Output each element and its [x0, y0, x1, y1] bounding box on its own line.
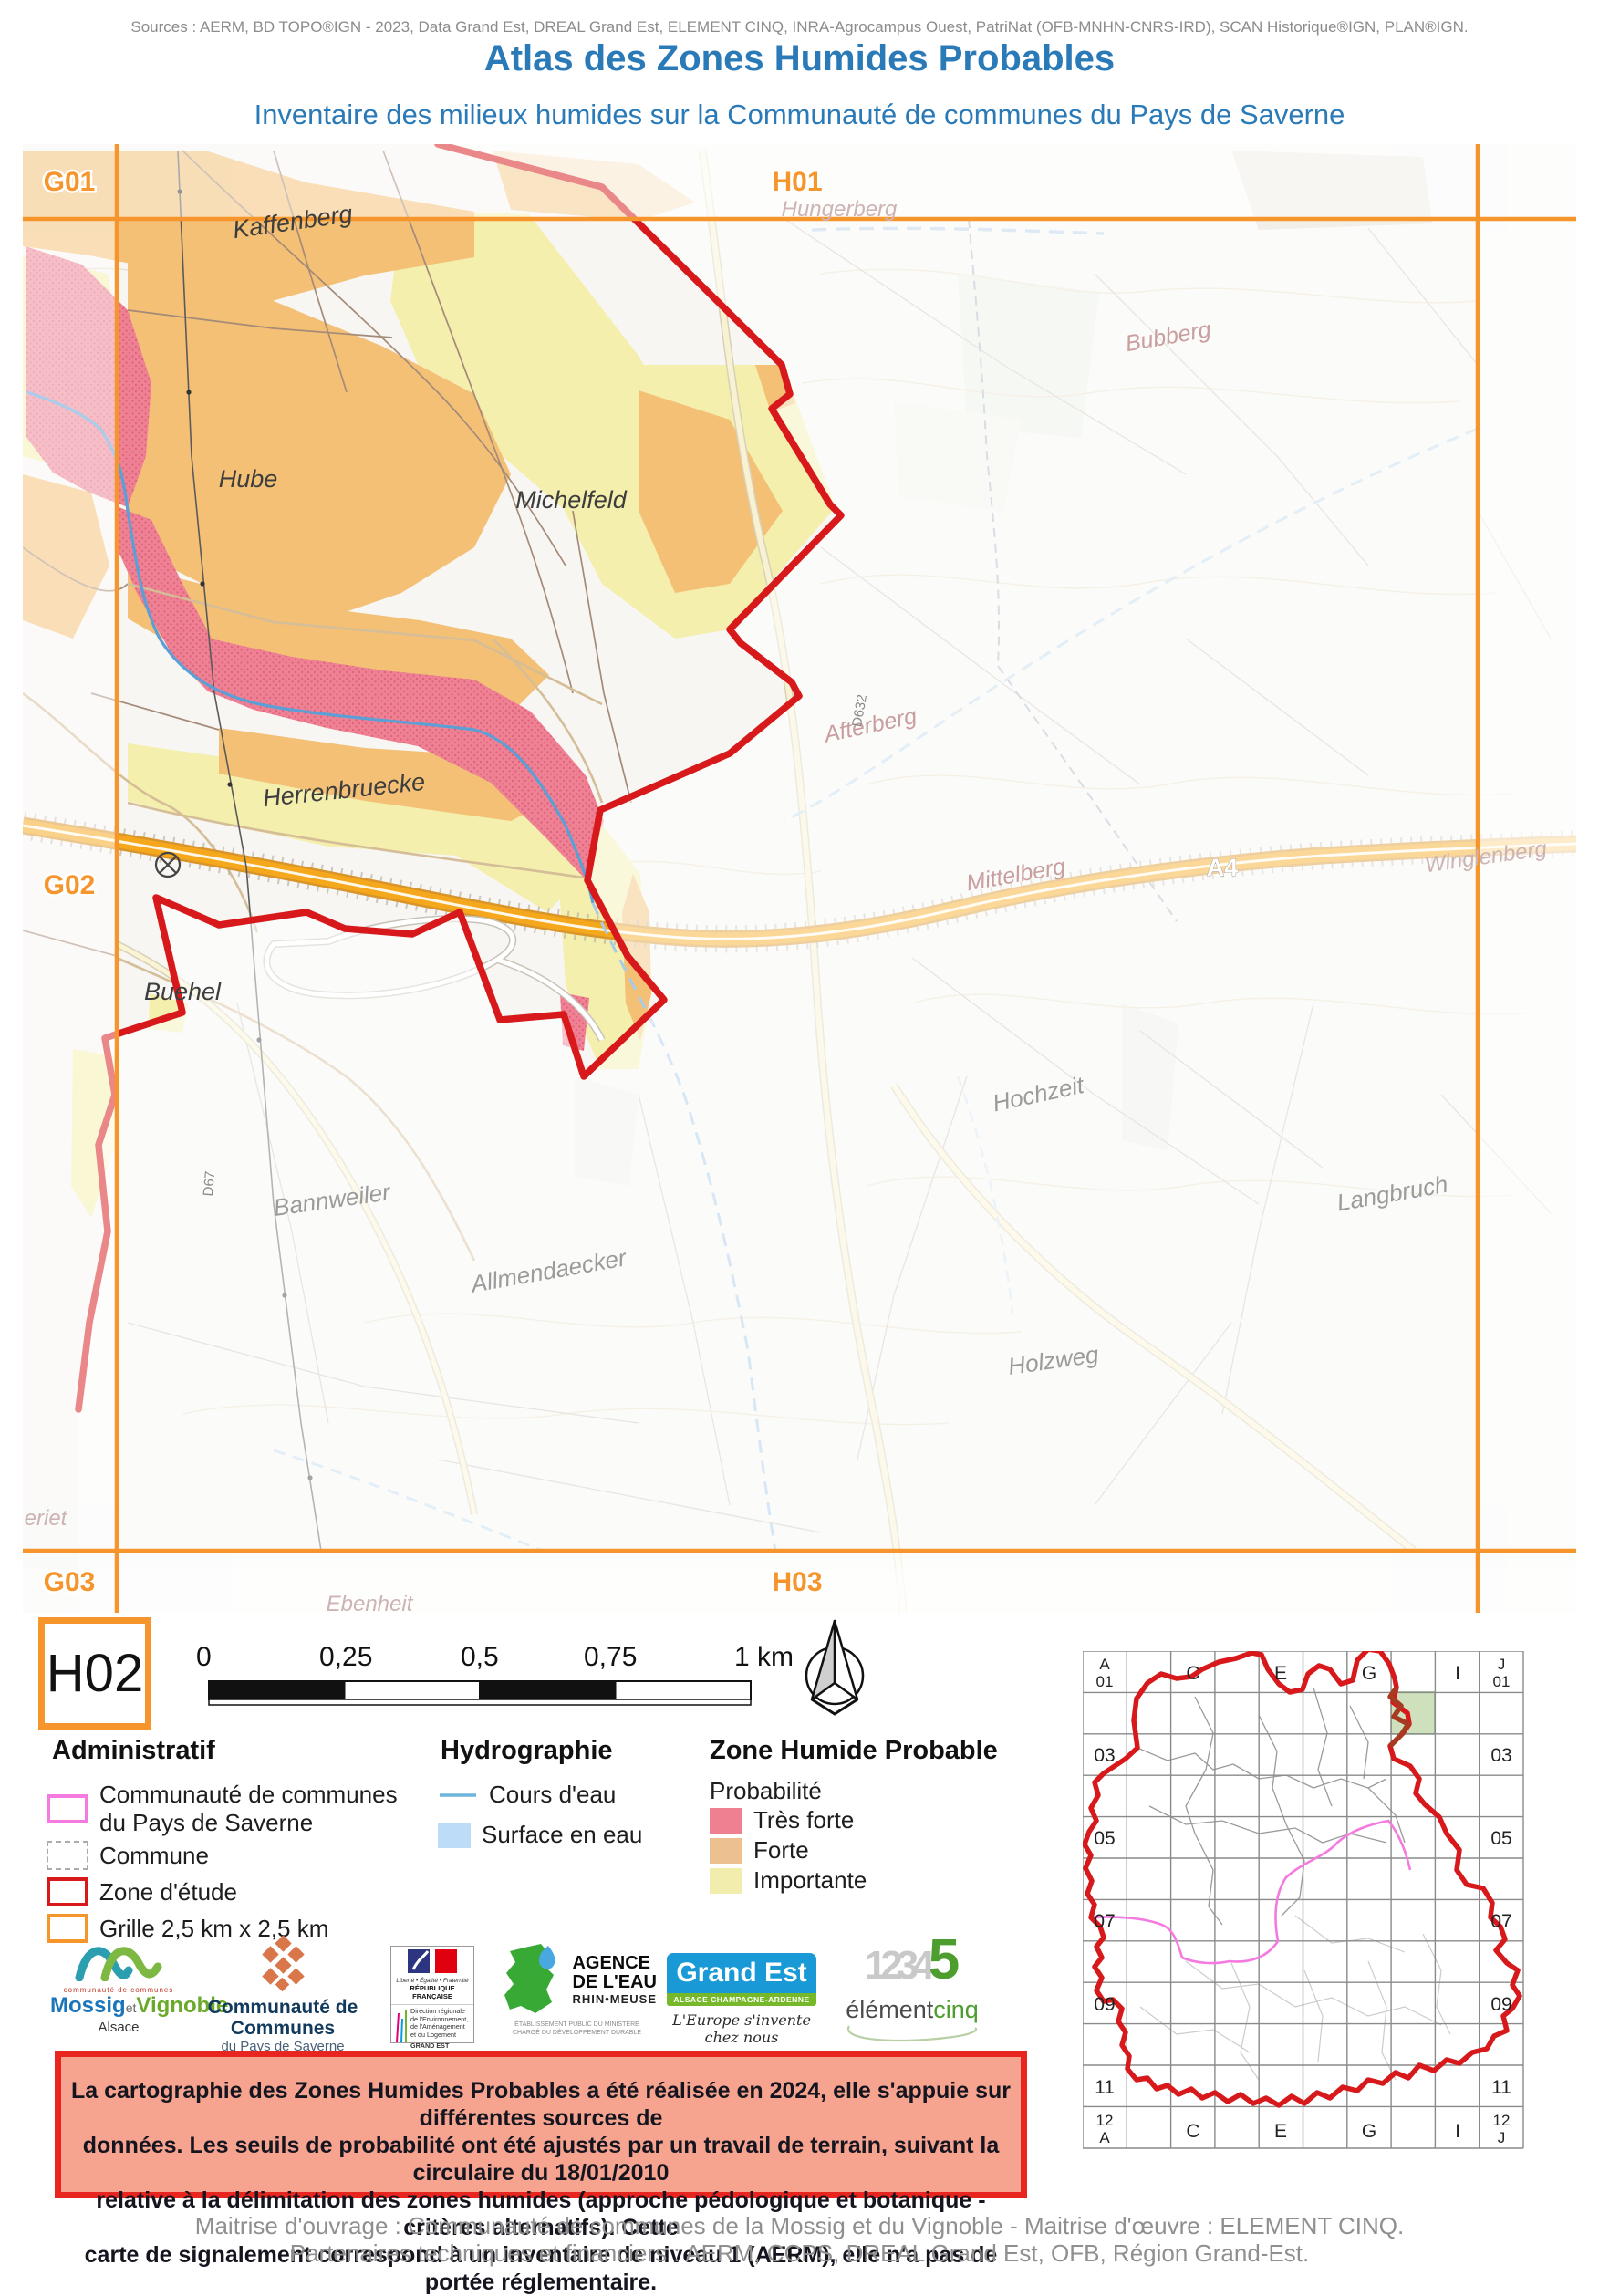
legend-administratif-title: Administratif — [52, 1736, 215, 1766]
dreal-motto: Liberté • Égalité • Fraternité — [391, 1978, 473, 1984]
ov-row-09-l: 09 — [1094, 1994, 1115, 2015]
dreal-sticks-mark — [394, 2008, 410, 2044]
grid-ref-box: H02 — [38, 1617, 151, 1730]
cc-label-line2: du Pays de Saverne — [99, 1809, 398, 1837]
agence-l2: DE L'EAU — [572, 1973, 657, 1992]
forte-swatch — [710, 1838, 742, 1864]
legend-item-zone: Zone d'étude — [47, 1877, 237, 1906]
warning-line1: La cartographie des Zones Humides Probab… — [61, 2077, 1021, 2132]
cc-label-line1: Communauté de communes — [99, 1781, 398, 1809]
cours-eau-label: Cours d'eau — [489, 1781, 616, 1809]
grid-ref-label: H02 — [47, 1643, 143, 1704]
zone-etude-label: Zone d'étude — [99, 1878, 237, 1906]
ov-corner-bl-1: 12 — [1096, 2112, 1114, 2129]
scale-tick-0: 0 — [196, 1642, 212, 1673]
ov-corner-bl-2: A — [1099, 2129, 1110, 2146]
footer-line2: Partenaires techniques et financiers : A… — [0, 2239, 1599, 2268]
ov-row-07-l: 07 — [1094, 1911, 1115, 1932]
ov-row-05-r: 05 — [1490, 1828, 1511, 1849]
ov-corner-tr-2: 01 — [1493, 1673, 1511, 1690]
ov-corner-br-2: J — [1498, 2129, 1506, 2146]
page-title: Atlas des Zones Humides Probables — [0, 38, 1599, 79]
cc-symbol — [47, 1794, 88, 1823]
grid-label-g02: G02 — [44, 870, 96, 900]
legend-item-importante: Importante — [710, 1866, 867, 1895]
element5-swoosh — [844, 2024, 981, 2044]
north-arrow — [792, 1619, 878, 1718]
footer-line1: Maitrise d'ouvrage : Communauté de commu… — [0, 2212, 1599, 2240]
ov-row-07-r: 07 — [1490, 1911, 1511, 1932]
ov-corner-tl-1: A — [1099, 1656, 1110, 1673]
logo-dreal: Liberté • Égalité • Fraternité RÉPUBLIQU… — [390, 1946, 474, 2043]
surface-eau-symbol — [438, 1823, 471, 1848]
label-michelfeld: Michelfeld — [515, 486, 628, 514]
legend-hydrographie-title: Hydrographie — [441, 1736, 613, 1766]
ov-top-i: I — [1455, 1663, 1460, 1684]
logo-cc-saverne: Communauté de Communes du Pays de Savern… — [192, 1936, 374, 2054]
ov-bottom-g: G — [1362, 2121, 1376, 2142]
element5-word1: élément — [846, 1996, 933, 2023]
element5-word2: cinq — [933, 1996, 979, 2023]
legend-item-commune: Commune — [47, 1841, 209, 1870]
ov-corner-tl-2: 01 — [1096, 1673, 1114, 1690]
scale-bar — [208, 1680, 755, 1708]
label-hungerberg: Hungerberg — [782, 197, 898, 222]
commune-label: Commune — [99, 1842, 209, 1870]
main-map-canvas: G01 H01 G02 G03 H03 Kaffenberg Hube Mich… — [23, 144, 1576, 1613]
tres-forte-swatch — [710, 1808, 742, 1834]
scale-tick-075: 0,75 — [584, 1642, 637, 1673]
legend-item-surface: Surface en eau — [438, 1821, 642, 1849]
label-eriet: eriet — [25, 1506, 68, 1531]
mossig-name1: Mossig — [50, 1993, 126, 2018]
ov-row-11-l: 11 — [1095, 2077, 1115, 2098]
sources-line: Sources : AERM, BD TOPO®IGN - 2023, Data… — [0, 18, 1599, 36]
legend-zh-title: Zone Humide Probable — [710, 1736, 998, 1766]
grid-label-h03: H03 — [772, 1567, 822, 1597]
scale-tick-1km: 1 km — [734, 1642, 794, 1673]
logo-mossig-vignoble: communauté de communes MossigetVignoble … — [50, 1934, 187, 2035]
agence-sub1: ÉTABLISSEMENT PUBLIC DU MINISTÈRE — [497, 2021, 657, 2029]
grid-label-g03: G03 — [44, 1567, 96, 1597]
ov-top-e: E — [1274, 1663, 1287, 1684]
ov-bottom-i: I — [1455, 2121, 1460, 2142]
scale-tick-025: 0,25 — [319, 1642, 372, 1673]
scale-tick-05: 0,5 — [461, 1642, 499, 1673]
grid-label-h01: H01 — [772, 167, 822, 197]
warning-box: La cartographie des Zones Humides Probab… — [55, 2051, 1027, 2198]
page-subtitle: Inventaire des milieux humides sur la Co… — [0, 99, 1599, 131]
grandest-script: L'Europe s'invente chez nous — [667, 2011, 816, 2046]
zone-etude-symbol — [47, 1877, 88, 1906]
cours-eau-symbol — [438, 1791, 478, 1800]
mossig-et: et — [126, 2000, 137, 2015]
saverne-logo-mark — [251, 1936, 315, 1992]
ov-row-03-l: 03 — [1094, 1745, 1115, 1766]
element5-digits: 1234 — [865, 1943, 929, 1988]
agence-sub2: CHARGÉ DU DÉVELOPPEMENT DURABLE — [497, 2029, 657, 2037]
ov-row-09-r: 09 — [1490, 1994, 1511, 2015]
label-hube: Hube — [219, 465, 278, 493]
legend-probabilite: Probabilité — [710, 1777, 822, 1805]
legend-item-tres-forte: Très forte — [710, 1806, 854, 1834]
tres-forte-label: Très forte — [753, 1806, 854, 1834]
agence-l3: RHIN•MEUSE — [572, 1992, 657, 2006]
legend-item-forte: Forte — [710, 1836, 809, 1865]
ov-corner-br-1: 12 — [1493, 2112, 1511, 2129]
main-map[interactable]: G01 H01 G02 G03 H03 Kaffenberg Hube Mich… — [23, 144, 1576, 1613]
legend-item-cours: Cours d'eau — [438, 1781, 616, 1809]
ov-bottom-c: C — [1186, 2121, 1199, 2142]
forte-label: Forte — [753, 1836, 809, 1865]
logo-grand-est: Grand Est ALSACE CHAMPAGNE-ARDENNE LORRA… — [667, 1953, 816, 2046]
label-a4-shield: A4 — [1207, 854, 1239, 881]
grandest-name: Grand Est — [676, 1958, 806, 1989]
importante-label: Importante — [753, 1866, 867, 1895]
logo-element-cinq: 12345 élémentcinq — [844, 1936, 981, 2049]
logo-agence-eau: AGENCE DE L'EAU RHIN•MEUSE ÉTABLISSEMENT… — [497, 1938, 657, 2037]
ov-corner-tr-1: J — [1498, 1656, 1506, 1673]
grandest-strip: ALSACE CHAMPAGNE-ARDENNE LORRAINE — [667, 1993, 816, 2006]
legend-item-cc: Communauté de communes du Pays de Savern… — [47, 1781, 398, 1837]
dreal-region: GRAND EST — [410, 2042, 468, 2051]
ov-top-c: C — [1186, 1663, 1199, 1684]
mossig-logo-mark — [68, 1934, 169, 1981]
ov-row-03-r: 03 — [1490, 1745, 1511, 1766]
element5-five: 5 — [929, 1928, 960, 1991]
dreal-l4: et du Logement — [410, 2031, 468, 2040]
surface-eau-label: Surface en eau — [482, 1821, 642, 1849]
warning-line2: données. Les seuils de probabilité ont é… — [61, 2132, 1021, 2187]
commune-symbol — [47, 1841, 88, 1870]
dreal-flag-mark — [406, 1949, 459, 1973]
agence-l1: AGENCE — [572, 1954, 657, 1973]
ov-bottom-e: E — [1274, 2121, 1287, 2142]
ov-row-05-l: 05 — [1094, 1828, 1115, 1849]
ov-top-g: G — [1362, 1663, 1376, 1684]
ov-row-11-r: 11 — [1491, 2077, 1511, 2098]
label-buehel: Buehel — [144, 978, 222, 1005]
mossig-region: Alsace — [50, 2020, 187, 2035]
label-d67: D67 — [201, 1170, 218, 1197]
label-ebenheit: Ebenheit — [327, 1592, 414, 1613]
grid-label-g01: G01 — [44, 167, 96, 197]
agence-eau-mark — [497, 1938, 570, 2021]
overview-map[interactable]: A 01 J 01 C E G I 03 03 05 05 07 07 09 0… — [1083, 1651, 1524, 2149]
dreal-republic: RÉPUBLIQUE FRANÇAISE — [391, 1984, 473, 2000]
saverne-line1: Communauté de Communes — [192, 1997, 374, 2039]
importante-swatch — [710, 1868, 742, 1894]
